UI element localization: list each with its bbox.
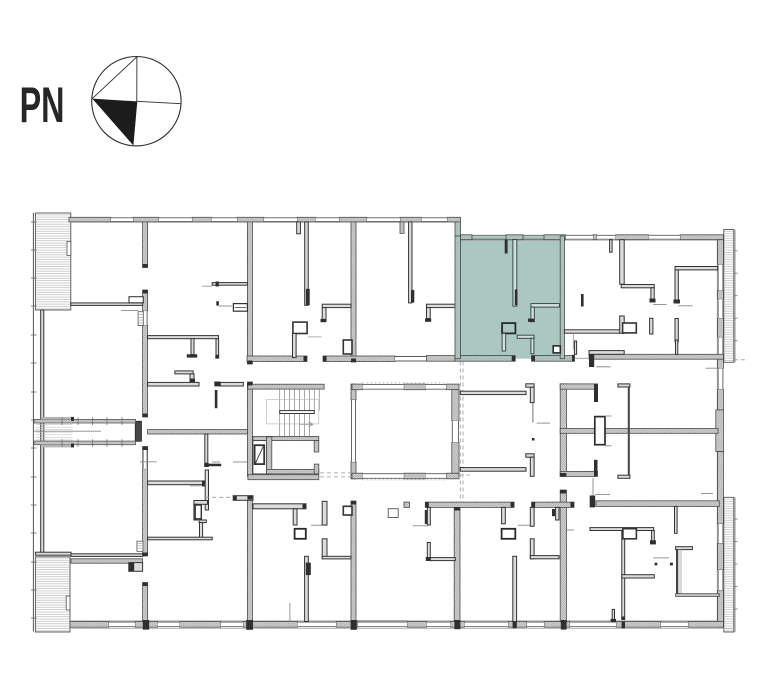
- svg-text:PN: PN: [20, 77, 65, 133]
